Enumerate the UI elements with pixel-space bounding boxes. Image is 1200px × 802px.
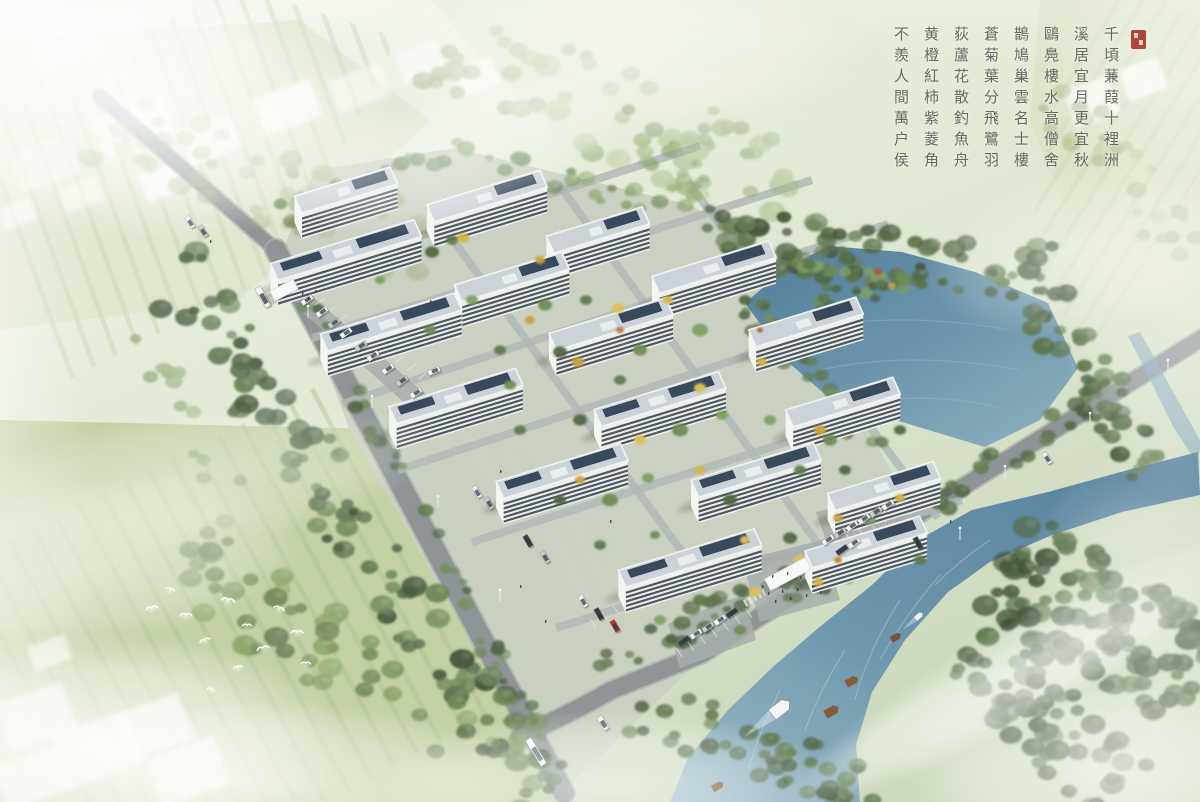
tree bbox=[691, 160, 702, 169]
tree bbox=[802, 373, 814, 382]
tree bbox=[764, 314, 775, 323]
tree bbox=[259, 376, 277, 390]
tree bbox=[593, 660, 608, 672]
tree bbox=[475, 637, 484, 644]
tree-highlight bbox=[586, 173, 593, 178]
tree bbox=[336, 519, 358, 536]
pedestrian bbox=[782, 590, 783, 593]
gold-tree bbox=[575, 476, 585, 484]
courtyard-tree bbox=[783, 532, 797, 543]
tree bbox=[832, 285, 842, 293]
tree bbox=[1064, 421, 1076, 430]
pedestrian bbox=[790, 597, 791, 600]
tree-highlight bbox=[872, 240, 880, 246]
tree bbox=[418, 504, 434, 516]
tree bbox=[401, 640, 417, 652]
autumn-tree bbox=[616, 327, 624, 333]
lamp-head bbox=[437, 495, 440, 498]
tree bbox=[743, 186, 758, 198]
lamp-head bbox=[1004, 465, 1007, 468]
tree-highlight bbox=[815, 216, 824, 223]
tree bbox=[326, 643, 339, 653]
courtyard-tree bbox=[672, 424, 688, 437]
tree-highlight bbox=[681, 618, 688, 623]
tree bbox=[625, 651, 634, 658]
tree bbox=[733, 584, 749, 596]
tree-highlight bbox=[413, 579, 423, 587]
tree bbox=[736, 215, 756, 231]
tree bbox=[506, 695, 519, 705]
tree bbox=[1039, 435, 1054, 447]
courtyard-tree bbox=[594, 540, 606, 550]
tree bbox=[392, 544, 402, 552]
courtyard-tree bbox=[723, 494, 737, 505]
courtyard-tree bbox=[823, 434, 837, 445]
tree-highlight bbox=[437, 611, 447, 618]
tree bbox=[839, 267, 851, 276]
tree bbox=[824, 265, 839, 277]
tree bbox=[711, 591, 728, 604]
tree-highlight bbox=[829, 247, 836, 252]
pedestrian bbox=[775, 600, 776, 603]
tree-highlight bbox=[757, 221, 767, 228]
pedestrian bbox=[768, 592, 769, 595]
lamp-head bbox=[959, 527, 962, 530]
courtyard-tree bbox=[573, 414, 587, 425]
gold-tree bbox=[525, 316, 535, 324]
tree-highlight bbox=[160, 302, 169, 309]
tree bbox=[863, 238, 883, 254]
tree bbox=[879, 224, 901, 241]
tree-highlight bbox=[342, 543, 351, 550]
courtyard-tree bbox=[375, 276, 385, 284]
tree bbox=[458, 598, 473, 610]
tree bbox=[852, 287, 862, 294]
tree-highlight bbox=[218, 349, 227, 356]
tree bbox=[814, 370, 828, 381]
courtyard-tree bbox=[466, 295, 478, 305]
tree bbox=[352, 384, 367, 396]
tree bbox=[478, 667, 503, 686]
pedestrian bbox=[797, 588, 798, 591]
rendering-canvas bbox=[0, 0, 1200, 802]
tree bbox=[939, 501, 957, 515]
tree bbox=[875, 437, 889, 448]
tree bbox=[651, 195, 668, 208]
tree-highlight bbox=[284, 645, 292, 651]
tree-highlight bbox=[210, 317, 218, 323]
tree bbox=[525, 700, 538, 711]
tree bbox=[234, 377, 254, 393]
gold-tree bbox=[814, 425, 826, 435]
tree bbox=[188, 306, 199, 314]
tree bbox=[870, 294, 880, 302]
tree-highlight bbox=[617, 152, 627, 159]
courtyard-tree bbox=[914, 555, 926, 565]
pedestrian bbox=[430, 300, 431, 303]
pedestrian bbox=[800, 576, 801, 579]
tree bbox=[848, 231, 862, 242]
autumn-tree bbox=[834, 557, 842, 563]
tree-highlight bbox=[346, 521, 355, 528]
tree-highlight bbox=[256, 370, 265, 377]
tree bbox=[385, 570, 397, 579]
tree-highlight bbox=[466, 670, 475, 677]
courtyard-tree bbox=[794, 465, 806, 475]
tree bbox=[897, 284, 909, 294]
pedestrian bbox=[520, 585, 521, 588]
tree bbox=[157, 363, 172, 375]
lamp-head bbox=[307, 305, 310, 308]
top-haze-edge bbox=[0, 0, 1200, 70]
tree bbox=[450, 649, 475, 669]
pedestrian bbox=[660, 560, 661, 563]
tree bbox=[633, 657, 643, 665]
gold-tree bbox=[895, 494, 905, 502]
tree bbox=[491, 662, 500, 669]
tree bbox=[979, 451, 992, 461]
tree bbox=[361, 635, 379, 649]
tree bbox=[677, 181, 695, 195]
tree bbox=[714, 210, 731, 223]
tree-highlight bbox=[326, 624, 336, 631]
tree bbox=[202, 315, 221, 330]
courtyard-tree bbox=[739, 295, 751, 305]
pedestrian bbox=[787, 572, 788, 575]
tree-highlight bbox=[984, 598, 995, 606]
tree-highlight bbox=[465, 681, 472, 687]
tree bbox=[739, 311, 750, 320]
tree bbox=[740, 148, 755, 159]
tree-highlight bbox=[322, 676, 330, 682]
tree bbox=[1009, 458, 1023, 469]
tree-highlight bbox=[243, 379, 251, 385]
tree bbox=[401, 577, 427, 597]
tree bbox=[462, 587, 471, 594]
tree-highlight bbox=[408, 642, 414, 647]
tree bbox=[233, 337, 248, 349]
tree bbox=[440, 564, 452, 573]
gold-tree bbox=[757, 358, 767, 366]
tree-highlight bbox=[718, 592, 725, 597]
tree bbox=[803, 260, 816, 270]
pedestrian bbox=[772, 575, 773, 578]
tree bbox=[459, 579, 468, 586]
tree-highlight bbox=[771, 204, 782, 212]
courtyard-tree bbox=[839, 465, 851, 475]
tree-highlight bbox=[633, 184, 640, 189]
tree-highlight bbox=[370, 671, 377, 677]
tree bbox=[244, 324, 254, 332]
tree bbox=[361, 560, 378, 573]
tree-highlight bbox=[779, 265, 786, 270]
gold-tree bbox=[695, 466, 705, 474]
tree bbox=[179, 252, 194, 264]
tree bbox=[773, 168, 793, 184]
tree-highlight bbox=[1025, 519, 1036, 527]
courtyard-tree bbox=[504, 380, 516, 390]
tree-highlight bbox=[889, 227, 898, 234]
tree-highlight bbox=[489, 669, 499, 676]
tree-highlight bbox=[275, 630, 285, 638]
courtyard-tree bbox=[602, 494, 618, 507]
tree-highlight bbox=[1005, 554, 1016, 562]
tree bbox=[702, 224, 713, 233]
pedestrian bbox=[545, 620, 546, 623]
tree-highlight bbox=[241, 355, 250, 362]
tree bbox=[818, 294, 830, 304]
courtyard-tree bbox=[424, 325, 436, 335]
tree-highlight bbox=[229, 299, 237, 305]
tree bbox=[762, 132, 781, 147]
tree-highlight bbox=[226, 291, 234, 297]
tree-highlight bbox=[370, 637, 377, 642]
pedestrian bbox=[308, 297, 309, 300]
tree bbox=[1043, 408, 1060, 422]
tree-highlight bbox=[391, 663, 400, 670]
tree bbox=[940, 487, 953, 497]
tree bbox=[370, 595, 394, 614]
tree bbox=[499, 678, 507, 684]
tree-highlight bbox=[419, 710, 425, 715]
tree bbox=[686, 143, 709, 161]
tree bbox=[600, 649, 612, 659]
tree bbox=[953, 484, 970, 497]
tree bbox=[208, 347, 230, 364]
tree bbox=[588, 189, 602, 200]
tree bbox=[805, 357, 817, 367]
tree-highlight bbox=[745, 217, 753, 223]
tree bbox=[276, 644, 295, 659]
tree-highlight bbox=[195, 244, 205, 252]
tree-highlight bbox=[456, 697, 464, 703]
autumn-tree bbox=[874, 269, 882, 275]
pedestrian bbox=[302, 292, 303, 295]
tree bbox=[804, 213, 828, 231]
gold-tree bbox=[612, 303, 624, 313]
tree bbox=[838, 254, 852, 265]
tree bbox=[426, 609, 451, 628]
tree bbox=[625, 183, 643, 197]
tree bbox=[328, 610, 345, 623]
tree-highlight bbox=[693, 191, 700, 196]
tree bbox=[876, 279, 886, 287]
tree bbox=[896, 273, 912, 285]
autumn-tree bbox=[888, 283, 896, 289]
tree-highlight bbox=[722, 212, 729, 217]
tree-highlight bbox=[381, 598, 391, 605]
courtyard-tree bbox=[894, 425, 906, 435]
tree bbox=[226, 331, 237, 339]
courtyard-tree bbox=[580, 295, 592, 305]
tree-highlight bbox=[696, 145, 705, 152]
tree bbox=[149, 300, 173, 318]
pedestrian bbox=[806, 594, 807, 597]
aerial-rendering: 千頃蒹葭十裡洲溪居宜月更宜秋鷗鳧樓水高僧舍鵲鳩巢雲名士樓蒼菊葉分飛鷺羽荻蘆花散釣… bbox=[0, 0, 1200, 802]
tree bbox=[203, 296, 218, 308]
tree bbox=[991, 587, 1004, 597]
tree bbox=[814, 246, 829, 258]
tree bbox=[644, 624, 657, 634]
gold-tree bbox=[634, 435, 646, 445]
courtyard-tree bbox=[734, 625, 746, 635]
tree bbox=[636, 145, 653, 158]
gold-tree bbox=[663, 296, 673, 304]
courtyard-tree bbox=[633, 344, 647, 355]
tree bbox=[492, 640, 505, 650]
gold-tree bbox=[457, 233, 469, 243]
pedestrian bbox=[950, 520, 951, 523]
tree bbox=[447, 695, 466, 710]
tree-highlight bbox=[661, 172, 670, 179]
tree bbox=[816, 261, 825, 268]
tree-highlight bbox=[683, 176, 690, 181]
pedestrian bbox=[500, 470, 501, 473]
tree-highlight bbox=[770, 134, 777, 140]
tree-highlight bbox=[785, 245, 794, 252]
courtyard-tree bbox=[425, 246, 439, 257]
pedestrian bbox=[762, 585, 763, 588]
tree-highlight bbox=[336, 612, 343, 617]
tree-highlight bbox=[466, 713, 474, 719]
tree bbox=[425, 584, 449, 603]
tree-highlight bbox=[246, 616, 254, 622]
tree bbox=[832, 228, 847, 240]
tree bbox=[665, 634, 677, 644]
courtyard-tree bbox=[764, 415, 776, 425]
tree bbox=[322, 534, 333, 543]
tree-highlight bbox=[803, 254, 810, 259]
autumn-tree bbox=[757, 328, 763, 333]
tree-highlight bbox=[685, 183, 692, 188]
pedestrian bbox=[812, 585, 813, 588]
tree-highlight bbox=[456, 680, 462, 685]
courtyard-tree bbox=[614, 375, 626, 385]
tree bbox=[665, 149, 676, 158]
courtyard-tree bbox=[650, 531, 660, 539]
tree bbox=[143, 371, 158, 383]
tree-highlight bbox=[329, 661, 339, 668]
gold-tree bbox=[740, 536, 750, 544]
tree-highlight bbox=[267, 378, 274, 383]
tree bbox=[383, 687, 402, 701]
tree-highlight bbox=[416, 265, 425, 272]
tree bbox=[333, 541, 355, 558]
courtyard-tree bbox=[553, 346, 567, 357]
pedestrian bbox=[315, 290, 316, 293]
tree bbox=[381, 661, 404, 679]
tree bbox=[313, 674, 333, 690]
pedestrian bbox=[610, 520, 611, 523]
tree bbox=[673, 616, 690, 630]
tree bbox=[130, 334, 142, 343]
tree bbox=[822, 283, 833, 292]
tree-highlight bbox=[461, 652, 471, 660]
tree-highlight bbox=[392, 688, 399, 694]
gold-tree bbox=[833, 514, 843, 522]
courtyard-tree bbox=[446, 235, 458, 245]
tree bbox=[219, 297, 240, 314]
pedestrian bbox=[210, 240, 211, 243]
tree-highlight bbox=[1042, 340, 1051, 347]
tree bbox=[667, 184, 678, 192]
tree bbox=[474, 647, 487, 657]
tree bbox=[294, 603, 307, 613]
courtyard-tree bbox=[554, 495, 566, 505]
tree bbox=[1032, 338, 1054, 355]
courtyard-tree bbox=[692, 324, 708, 337]
tree bbox=[362, 669, 381, 684]
tree bbox=[231, 353, 253, 370]
tree-highlight bbox=[782, 170, 790, 176]
tree-highlight bbox=[948, 503, 955, 508]
tree bbox=[621, 201, 632, 210]
tree-highlight bbox=[309, 656, 316, 661]
courtyard-tree bbox=[693, 594, 707, 605]
courtyard-tree bbox=[642, 473, 654, 483]
gold-tree bbox=[749, 587, 761, 597]
pedestrian bbox=[820, 591, 821, 594]
tree bbox=[777, 211, 792, 222]
tree-highlight bbox=[961, 486, 968, 491]
gold-tree bbox=[813, 578, 823, 586]
tree bbox=[860, 225, 875, 237]
tree-highlight bbox=[659, 197, 666, 202]
tree bbox=[705, 205, 716, 213]
tree bbox=[362, 648, 378, 660]
gold-tree bbox=[572, 357, 584, 367]
tree-highlight bbox=[285, 391, 293, 397]
courtyard-tree bbox=[538, 299, 552, 310]
tree-highlight bbox=[275, 591, 285, 598]
lamp-head bbox=[371, 395, 374, 398]
courtyard-tree bbox=[494, 345, 506, 355]
gold-tree bbox=[694, 383, 706, 393]
tree bbox=[706, 699, 720, 710]
courtyard-tree bbox=[654, 615, 666, 625]
left-haze-edge bbox=[0, 0, 100, 802]
tree bbox=[760, 303, 769, 310]
tree bbox=[315, 622, 340, 641]
tree-highlight bbox=[1051, 410, 1058, 415]
tree-highlight bbox=[664, 706, 671, 711]
tree-highlight bbox=[436, 586, 446, 593]
tree bbox=[172, 367, 187, 379]
tree-highlight bbox=[726, 234, 735, 241]
tree bbox=[972, 595, 998, 616]
tree-highlight bbox=[307, 675, 313, 680]
tree-highlight bbox=[405, 632, 413, 638]
gold-tree bbox=[535, 256, 545, 264]
courtyard-tree bbox=[716, 410, 728, 420]
tree bbox=[782, 228, 792, 236]
tree bbox=[432, 528, 445, 538]
tree bbox=[355, 683, 373, 697]
tree bbox=[698, 175, 709, 184]
tree-highlight bbox=[364, 684, 371, 690]
lamp-head bbox=[499, 589, 502, 592]
tree bbox=[607, 185, 616, 192]
tree-highlight bbox=[368, 562, 375, 567]
tree bbox=[436, 678, 452, 690]
tree bbox=[456, 710, 477, 726]
courtyard-tree bbox=[514, 425, 526, 435]
tree-highlight bbox=[644, 147, 651, 152]
tree bbox=[716, 232, 740, 250]
tree bbox=[681, 693, 696, 705]
tree-highlight bbox=[990, 449, 997, 454]
